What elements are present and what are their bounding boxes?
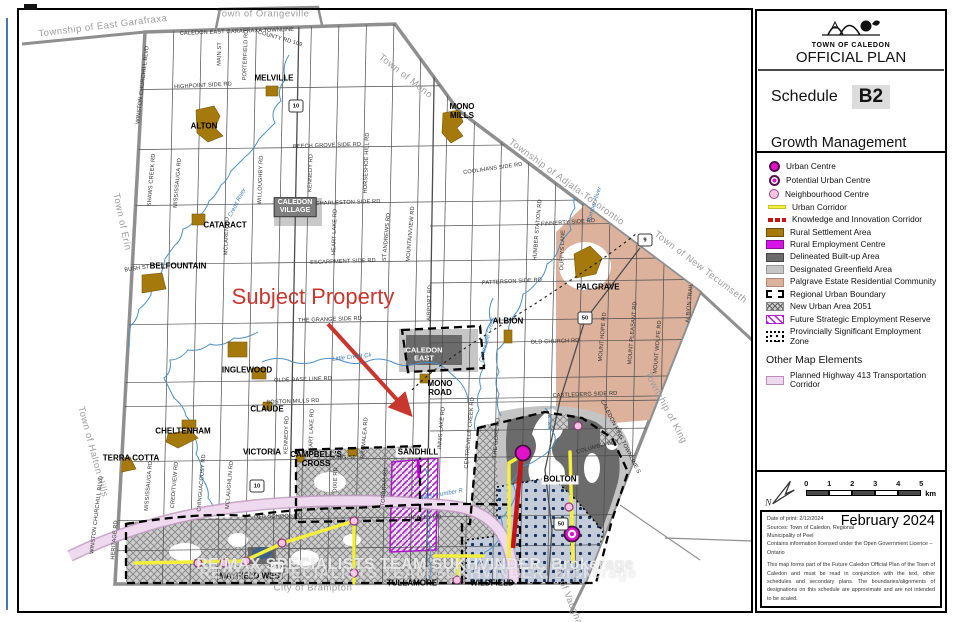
neighbourhood-centre-marker bbox=[220, 559, 228, 567]
map-date: February 2024 bbox=[841, 513, 935, 529]
legend-item-label: Future Strategic Employment Reserve bbox=[790, 315, 931, 324]
neighbourhood-centre-marker bbox=[453, 576, 461, 584]
scale-tick: 0 bbox=[804, 479, 808, 488]
disclaimer-note: This map forms part of the Future Caledo… bbox=[767, 561, 935, 603]
legend-item-label: Knowledge and Innovation Corridor bbox=[792, 215, 922, 224]
potential-urban-centre-core bbox=[570, 532, 574, 536]
legend-item-row-13: Provincially Significant Employment Zone bbox=[766, 327, 941, 346]
rsa-swatch-icon bbox=[766, 228, 784, 237]
legend-item-label: Rural Settlement Area bbox=[790, 228, 871, 237]
neighbourhood-centre-marker bbox=[194, 559, 202, 567]
north-arrow-icon: N bbox=[763, 476, 796, 508]
legend-item-label: Palgrave Estate Residential Community bbox=[790, 277, 936, 286]
highway-shield-icon: 50 bbox=[578, 312, 593, 325]
psez-swatch-icon bbox=[766, 331, 784, 342]
scale-tick: 4 bbox=[896, 479, 900, 488]
scan-artifact-tick bbox=[24, 4, 37, 10]
legend-item-row-1: Potential Urban Centre bbox=[766, 175, 941, 186]
scale-segment bbox=[806, 490, 829, 496]
perc-swatch-icon bbox=[766, 278, 784, 287]
scale-segment bbox=[829, 490, 852, 496]
neighbourhood-centre-marker bbox=[574, 422, 582, 430]
legend-list: Urban CentrePotential Urban CentreNeighb… bbox=[766, 161, 941, 346]
legend-item-row-0: Urban Centre bbox=[766, 161, 941, 172]
neighbourhood-centre-marker bbox=[278, 539, 286, 547]
scale-tick: 5 bbox=[919, 479, 923, 488]
h413-swatch-icon bbox=[766, 376, 784, 385]
legend-item-row-7: Delineated Built-up Area bbox=[766, 252, 941, 261]
legend-item-label: Rural Employment Centre bbox=[790, 240, 885, 249]
legend: Urban CentrePotential Urban CentreNeighb… bbox=[757, 153, 945, 472]
legend-item-row-11: New Urban Area 2051 bbox=[766, 302, 941, 311]
scan-artifact-line bbox=[6, 18, 8, 610]
legend-item-row-10: Regional Urban Boundary bbox=[766, 290, 941, 299]
rub-swatch-icon bbox=[766, 290, 784, 298]
legend-item-row-12: Future Strategic Employment Reserve bbox=[766, 315, 941, 324]
legend-item-row-6: Rural Employment Centre bbox=[766, 240, 941, 249]
legend-item-label: Urban Corridor bbox=[792, 203, 847, 212]
dba-swatch-icon bbox=[766, 253, 784, 262]
puc-swatch-icon bbox=[769, 175, 780, 186]
legend-item-label: Regional Urban Boundary bbox=[790, 290, 885, 299]
rural-employment-line bbox=[418, 460, 419, 478]
subject-property-label: Subject Property bbox=[232, 284, 395, 310]
legend-item-label: Potential Urban Centre bbox=[786, 176, 870, 185]
other-item-label: Planned Highway 413 Transportation Corri… bbox=[790, 371, 941, 390]
legend-item-label: Designated Greenfield Area bbox=[790, 265, 892, 274]
org-name: TOWN OF CALEDON bbox=[757, 42, 945, 49]
legend-item-label: Neighbourhood Centre bbox=[785, 190, 869, 199]
uc-swatch-icon bbox=[769, 161, 780, 172]
schedule-code: B2 bbox=[852, 85, 890, 109]
legend-item-label: New Urban Area 2051 bbox=[790, 302, 872, 311]
legend-item-label: Urban Centre bbox=[786, 162, 836, 171]
neighbourhood-centre-marker bbox=[242, 557, 250, 565]
scale-tick: 3 bbox=[873, 479, 877, 488]
schedule-subtitle: Growth Management bbox=[757, 109, 945, 151]
legend-item-row-8: Designated Greenfield Area bbox=[766, 265, 941, 274]
legend-item-row-4: Knowledge and Innovation Corridor bbox=[766, 215, 941, 224]
kic-swatch-icon bbox=[768, 218, 786, 222]
ycorr-swatch-icon bbox=[768, 205, 786, 209]
neighbourhood-centre-marker bbox=[350, 569, 358, 577]
other-map-elements-header: Other Map Elements bbox=[766, 354, 941, 366]
caledon-logo bbox=[820, 15, 882, 39]
schedule-label: Schedule bbox=[771, 88, 838, 106]
highway-shield-icon: 410 bbox=[270, 561, 285, 574]
legend-item-row-5: Rural Settlement Area bbox=[766, 228, 941, 237]
highway-shield-icon: 9 bbox=[638, 234, 653, 247]
legend-item-row-9: Palgrave Estate Residential Community bbox=[766, 277, 941, 286]
nua-swatch-icon bbox=[766, 302, 784, 311]
scale-block: N 012345km bbox=[757, 472, 945, 510]
licence-note: Contains information licensed under the … bbox=[767, 540, 935, 557]
neighbourhood-centre-marker bbox=[350, 517, 358, 525]
official-plan-page: Township of East GarafraxaTown of Orange… bbox=[0, 0, 960, 622]
other-item-row-0: Planned Highway 413 Transportation Corri… bbox=[766, 371, 941, 390]
highway-shield-icon: 10 bbox=[250, 480, 265, 493]
notes-block: February 2024 Date of print: 2/12/2024 S… bbox=[760, 510, 942, 608]
legend-item-label: Delineated Built-up Area bbox=[790, 252, 879, 261]
svg-text:N: N bbox=[764, 498, 772, 508]
fser-swatch-icon bbox=[766, 315, 784, 324]
scale-tick: 1 bbox=[827, 479, 831, 488]
other-map-elements-list: Planned Highway 413 Transportation Corri… bbox=[766, 371, 941, 390]
dga-swatch-icon bbox=[766, 265, 784, 274]
right-panel: TOWN OF CALEDON OFFICIAL PLAN Schedule B… bbox=[755, 9, 947, 613]
legend-item-row-3: Urban Corridor bbox=[766, 203, 941, 212]
scale-unit: km bbox=[925, 489, 936, 498]
scale-tick: 2 bbox=[850, 479, 854, 488]
scale-segment bbox=[875, 490, 898, 496]
rec-swatch-icon bbox=[766, 240, 784, 249]
legend-item-label: Provincially Significant Employment Zone bbox=[790, 327, 941, 346]
highway-shield-icon: 10 bbox=[289, 100, 304, 113]
plan-title: OFFICIAL PLAN bbox=[758, 49, 944, 71]
caledon-village-area bbox=[274, 198, 322, 226]
title-block: TOWN OF CALEDON OFFICIAL PLAN Schedule B… bbox=[757, 11, 945, 153]
highway-shield-icon: 50 bbox=[554, 518, 569, 531]
neighbourhood-centre-marker bbox=[565, 503, 573, 511]
nc-swatch-icon bbox=[769, 189, 779, 199]
urban-centre-marker bbox=[516, 446, 531, 461]
schedule-line: Schedule B2 bbox=[757, 71, 945, 109]
legend-item-row-2: Neighbourhood Centre bbox=[766, 189, 941, 199]
scale-bar: 012345km bbox=[802, 479, 941, 505]
scale-segment bbox=[852, 490, 875, 496]
scale-segment bbox=[898, 490, 921, 496]
